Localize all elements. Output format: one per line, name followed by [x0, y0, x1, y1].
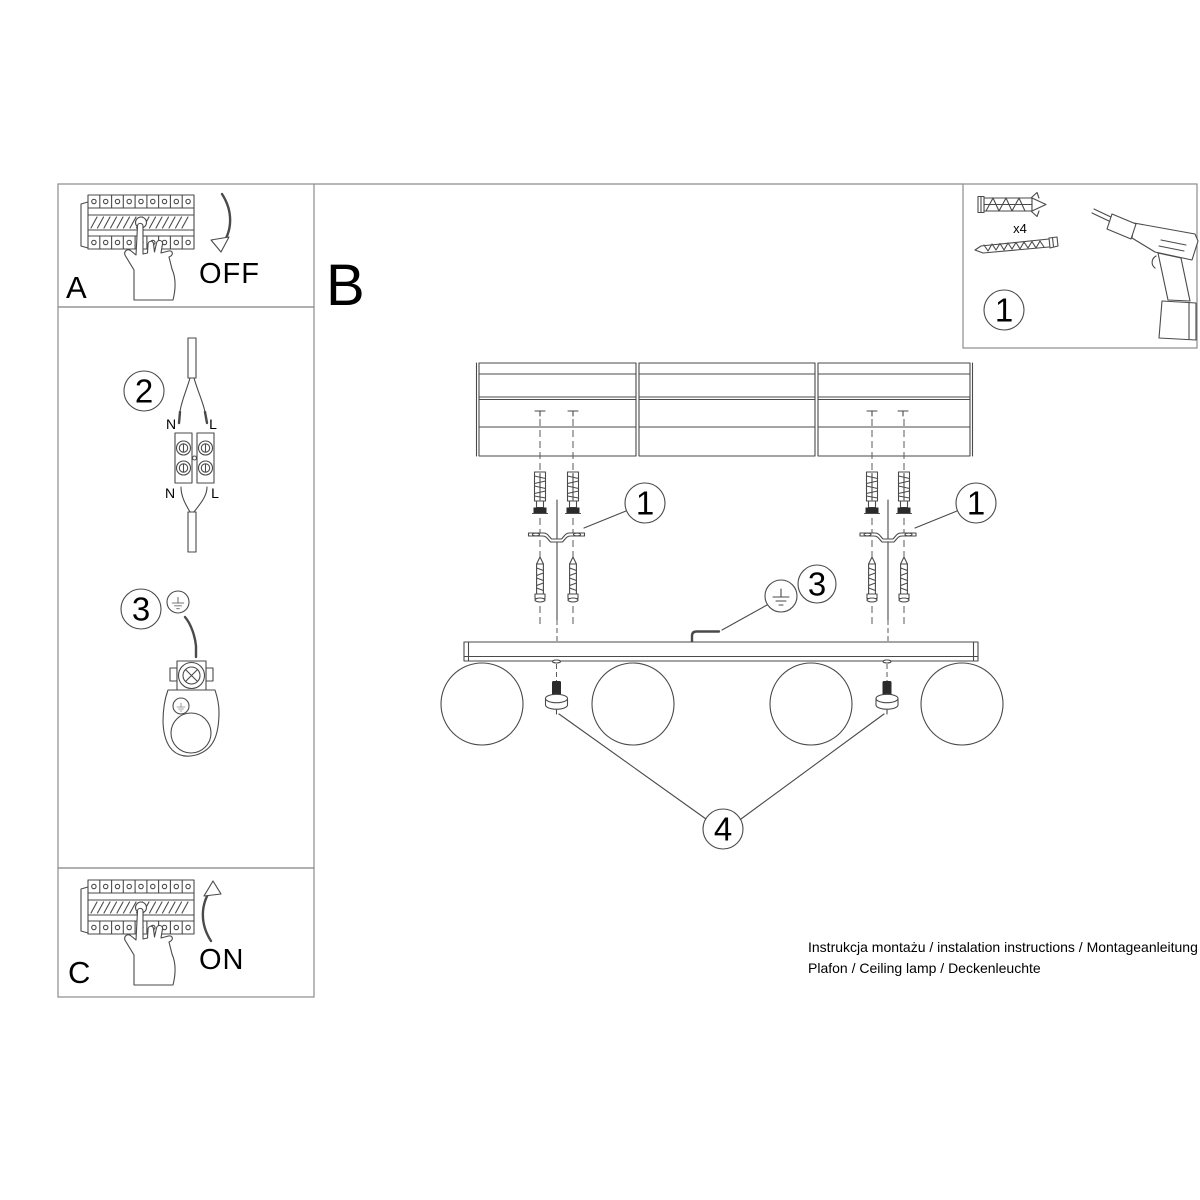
screw-icon: [899, 557, 909, 602]
wire-tips-top: [179, 412, 207, 423]
screw-icon: [867, 557, 877, 602]
wires-bottom: [181, 487, 207, 512]
step-c-label: C: [68, 955, 90, 990]
layout-frame: [58, 184, 1197, 997]
ceiling-panel: [639, 363, 815, 456]
label-l-top: L: [209, 416, 217, 432]
footer-line-2: Plafon / Ceiling lamp / Deckenleuchte: [808, 960, 1041, 976]
svg-text:1: 1: [636, 485, 654, 522]
wall-plug-icon: [865, 472, 880, 514]
svg-text:4: 4: [714, 811, 732, 848]
svg-text:2: 2: [135, 373, 153, 410]
fixing-screw-right: [876, 660, 898, 714]
lamp-mounting-bar: [464, 642, 978, 661]
leader-line: [584, 511, 626, 528]
ceiling-panel: [479, 363, 636, 456]
svg-text:1: 1: [995, 292, 1013, 329]
callout-1-parts: 1: [984, 290, 1024, 330]
callout-3-left: 3: [121, 589, 161, 629]
callout-1-right: 1: [956, 483, 996, 523]
wall-plug-icon: [897, 472, 912, 514]
bracket-body: [163, 690, 219, 756]
wall-plug-icon: [978, 193, 1046, 217]
lamp-globe: [770, 663, 852, 745]
clamp-tab-left: [170, 668, 177, 681]
wall-plug-icon: [533, 472, 548, 514]
step-b-label: B: [326, 253, 365, 318]
svg-text:3: 3: [808, 566, 826, 603]
ground-clamp-diagram: 3: [121, 589, 219, 756]
callout-2: 2: [124, 371, 164, 411]
svg-text:1: 1: [967, 485, 985, 522]
leader-line: [915, 511, 957, 528]
ground-wire: [185, 617, 196, 657]
callout-3-right: 3: [798, 565, 836, 603]
step-a: OFF A: [66, 194, 260, 305]
screw-icon: [975, 237, 1058, 253]
clamp-tab-right: [206, 668, 213, 681]
lamp-globe: [921, 663, 1003, 745]
screw-icon: [568, 557, 578, 602]
ceiling-panel: [818, 363, 970, 456]
footer-line-1: Instrukcja montażu / instalation instruc…: [808, 939, 1198, 955]
fixing-screw-left: [546, 660, 568, 714]
lamp-fixture: 3 4: [441, 565, 1003, 849]
label-n-bottom: N: [165, 485, 175, 501]
drill-icon: [1092, 209, 1198, 340]
step-a-label: A: [66, 270, 87, 305]
diagram-canvas: OFF A B ON C 2 N L N L: [0, 0, 1200, 1200]
ceiling-panels: [477, 363, 973, 456]
anchor-qty-label: x4: [1013, 221, 1027, 236]
lamp-globe: [441, 663, 523, 745]
svg-text:3: 3: [132, 591, 150, 628]
step-c: ON C: [68, 880, 245, 990]
label-n-top: N: [166, 416, 176, 432]
footer: Instrukcja montażu / instalation instruc…: [808, 939, 1198, 976]
off-label: OFF: [199, 258, 260, 290]
leader-line: [722, 605, 767, 630]
wiring-diagram: 2 N L N L: [124, 338, 219, 552]
parts-required: x4 1: [975, 193, 1198, 341]
wires-top: [180, 378, 205, 412]
wall-plug-icon: [566, 472, 581, 514]
arrow-up-head: [204, 881, 221, 896]
instruction-sheet: OFF A B ON C 2 N L N L: [0, 0, 1200, 1200]
lamp-globe: [592, 663, 674, 745]
arrow-down-head: [211, 237, 229, 252]
label-l-bottom: L: [211, 485, 219, 501]
cable-bottom: [188, 512, 196, 552]
on-label: ON: [199, 944, 245, 976]
cable-top: [188, 338, 196, 378]
screw-icon: [535, 557, 545, 602]
callout-1-left: 1: [625, 483, 665, 523]
callout-4: 4: [703, 809, 743, 849]
ground-wire-hook: [692, 632, 719, 643]
